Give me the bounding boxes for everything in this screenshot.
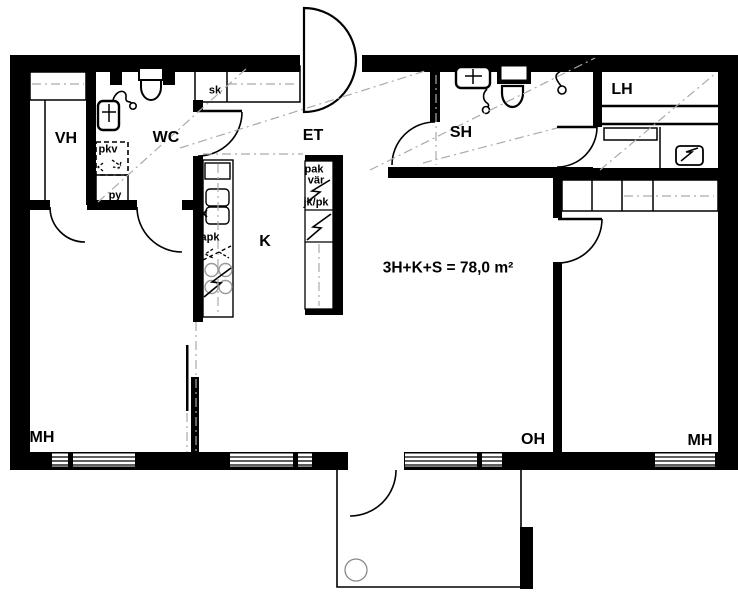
kitchen-column-cap-bottom bbox=[305, 309, 343, 315]
mh-right-door-arc bbox=[558, 219, 602, 263]
room-label-et: ET bbox=[303, 128, 323, 144]
label-jk-pk: jk/pk bbox=[303, 198, 328, 209]
shower-head-icon bbox=[558, 86, 566, 94]
balcony-wall-stub bbox=[520, 527, 533, 589]
wall-et-sh bbox=[430, 72, 440, 122]
wc-mh-door-arc bbox=[137, 207, 182, 252]
kitchen-column-wall bbox=[333, 155, 343, 315]
sh-door-arc bbox=[392, 122, 435, 165]
sauna-fixtures bbox=[602, 106, 718, 168]
wall-mh-oh-stub bbox=[191, 377, 199, 452]
jk-pk-zigzag bbox=[307, 214, 331, 240]
room-label-wc: WC bbox=[153, 130, 180, 146]
window bbox=[482, 454, 502, 467]
label-sk: sk bbox=[209, 86, 221, 97]
wall-oh-mh-upper bbox=[553, 180, 562, 218]
sauna-stove-zigzag bbox=[681, 148, 698, 161]
window bbox=[655, 454, 715, 467]
closet-vh-shelf bbox=[30, 72, 86, 100]
wall-vh-wc bbox=[86, 72, 96, 205]
wall-mh-top-b bbox=[87, 200, 137, 210]
room-label-k: K bbox=[259, 234, 271, 250]
sh-hose bbox=[484, 89, 489, 108]
wall-top-right bbox=[362, 55, 728, 72]
room-label-oh: OH bbox=[521, 432, 545, 448]
wc-door-arc bbox=[198, 112, 242, 156]
label-var: vär bbox=[308, 176, 325, 187]
wall-stub bbox=[163, 72, 175, 85]
balcony bbox=[337, 470, 533, 589]
balcony-drain bbox=[345, 559, 367, 581]
window bbox=[73, 454, 135, 467]
pkv-arrows bbox=[98, 160, 121, 171]
wall-lh-bottom bbox=[553, 168, 718, 180]
sauna-door-arc bbox=[557, 127, 597, 167]
balcony-door-opening bbox=[348, 452, 404, 470]
wall-thin-partition bbox=[186, 345, 189, 411]
wall-sh-lh bbox=[593, 72, 602, 127]
wall-right bbox=[718, 55, 738, 470]
wall-mh-top-a bbox=[10, 200, 50, 210]
sauna-bench-step bbox=[604, 128, 657, 140]
wc-toilet-tank bbox=[139, 68, 163, 80]
room-label-sh: SH bbox=[450, 125, 472, 141]
apartment-area-text: 3H+K+S = 78,0 m² bbox=[383, 260, 514, 276]
label-py: py bbox=[109, 191, 122, 202]
balcony-outline bbox=[337, 470, 521, 587]
label-apk: apk bbox=[201, 233, 220, 244]
room-label-mh-right: MH bbox=[688, 433, 713, 449]
sh-hose-head bbox=[483, 107, 490, 114]
wall-left bbox=[10, 55, 30, 470]
window bbox=[298, 454, 312, 467]
wc-toilet-bowl bbox=[141, 80, 161, 100]
wall-oh-mh-lower bbox=[553, 262, 562, 452]
wall-stub bbox=[110, 72, 122, 85]
room-label-lh: LH bbox=[611, 82, 632, 98]
room-label-vh: VH bbox=[55, 131, 77, 147]
centerlines bbox=[32, 58, 716, 452]
wall-mh-top-c bbox=[182, 200, 203, 210]
floor-plan: VH WC ET SH LH K MH OH MH 3H+K+S = 78,0 … bbox=[0, 0, 738, 595]
balcony-door-arc bbox=[350, 470, 396, 516]
sauna-stove-icon bbox=[676, 146, 703, 165]
kitchen-column-cap-top bbox=[305, 155, 343, 161]
wc-hose-head bbox=[130, 103, 136, 109]
room-label-mh-left: MH bbox=[30, 430, 55, 446]
window bbox=[230, 454, 293, 467]
label-pkv: pkv bbox=[99, 145, 118, 156]
window bbox=[52, 454, 68, 467]
vh-door-arc bbox=[50, 207, 85, 242]
window bbox=[405, 454, 477, 467]
entrance-door bbox=[304, 8, 356, 112]
doors bbox=[50, 8, 602, 516]
sh-toilet-bowl bbox=[502, 86, 523, 107]
